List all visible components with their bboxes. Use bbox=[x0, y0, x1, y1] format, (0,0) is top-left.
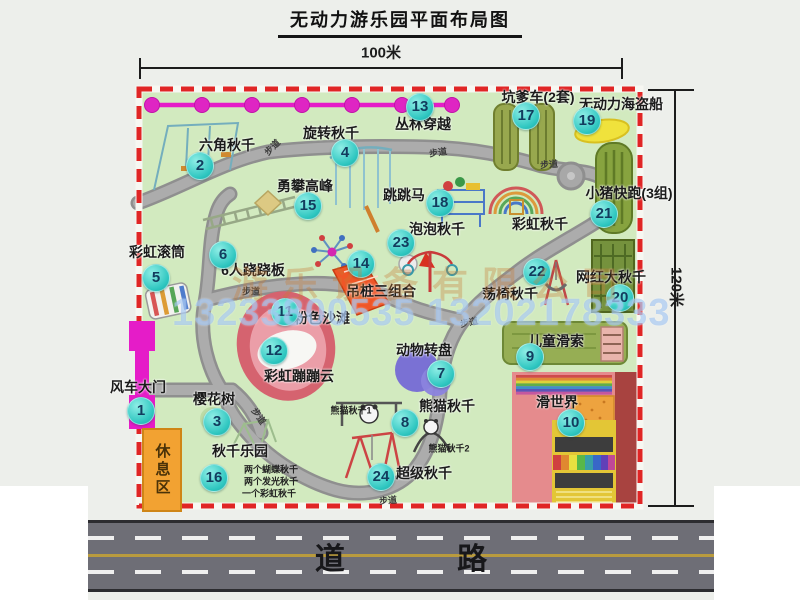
map-badge-2: 2 bbox=[186, 152, 214, 180]
map-badge-18: 18 bbox=[426, 189, 454, 217]
map-label-5: 彩虹滚筒 bbox=[129, 242, 185, 262]
map-label-17: 坑爹车(2套) bbox=[501, 87, 574, 107]
walkway-label-0: 步道 bbox=[261, 136, 283, 158]
map-badge-23: 23 bbox=[387, 229, 415, 257]
map-badge-11: 11 bbox=[271, 298, 299, 326]
map-label-3: 樱花树 bbox=[193, 389, 235, 409]
map-label-18: 跳跳马 bbox=[383, 185, 425, 205]
map-label-24: 超级秋千 bbox=[396, 463, 452, 483]
road-label: 道 路 bbox=[88, 534, 714, 578]
map-badge-19: 19 bbox=[573, 107, 601, 135]
map-badge-4: 4 bbox=[331, 139, 359, 167]
map-badge-6: 6 bbox=[209, 241, 237, 269]
map-badge-9: 9 bbox=[516, 343, 544, 371]
road: 道 路 bbox=[88, 520, 714, 592]
map-badge-10: 10 bbox=[557, 409, 585, 437]
walkway-label-2: 步道 bbox=[539, 157, 558, 172]
map-badge-24: 24 bbox=[367, 463, 395, 491]
map-badge-15: 15 bbox=[294, 192, 322, 220]
walkway-label-3: 步道 bbox=[242, 285, 260, 298]
walkway-label-6: 步道 bbox=[378, 493, 397, 508]
map-badge-17: 17 bbox=[512, 102, 540, 130]
map-badge-7: 7 bbox=[427, 360, 455, 388]
walkway-label-1: 步道 bbox=[428, 144, 448, 159]
map-badge-1: 1 bbox=[127, 397, 155, 425]
map-small-label-1: 熊猫秋千2 bbox=[428, 442, 469, 455]
map-badge-20: 20 bbox=[606, 284, 634, 312]
map-badge-3: 3 bbox=[203, 408, 231, 436]
map-badge-22: 22 bbox=[523, 258, 551, 286]
map-badge-12: 12 bbox=[260, 337, 288, 365]
map-label-14: 吊桩三组合 bbox=[346, 281, 416, 301]
map-badge-5: 5 bbox=[142, 264, 170, 292]
map-label-16: 秋千乐园 bbox=[212, 441, 268, 461]
map-label-2: 六角秋千 bbox=[199, 135, 255, 155]
map-small-label-0: 熊猫秋千1 bbox=[330, 404, 371, 417]
map-badge-13: 13 bbox=[406, 93, 434, 121]
rest-area-box: 休息区 bbox=[142, 428, 182, 512]
map-badge-14: 14 bbox=[347, 250, 375, 278]
map-label-11: 粉色沙滩 bbox=[294, 308, 350, 328]
map-small-label-4: 一个彩虹秋千 bbox=[242, 487, 296, 500]
map-label-8: 熊猫秋千 bbox=[419, 396, 475, 416]
map-annotation-layer: 风车大门1六角秋千2樱花树3旋转秋千4彩虹滚筒56人跷跷板6动物转盘7熊猫秋千8… bbox=[0, 0, 800, 600]
map-label-23: 泡泡秋千 bbox=[409, 219, 465, 239]
rest-area-label: 休息区 bbox=[152, 443, 173, 497]
map-label-12: 彩虹蹦蹦云 bbox=[264, 366, 334, 386]
walkway-label-4: 步道 bbox=[459, 314, 479, 330]
map-badge-8: 8 bbox=[391, 409, 419, 437]
map-badge-21: 21 bbox=[590, 200, 618, 228]
walkway-label-5: 步道 bbox=[249, 405, 270, 427]
map-label-20: 网红大秋千 bbox=[576, 267, 646, 287]
map-label-22: 荡椅秋千 bbox=[482, 284, 538, 304]
map-label-7: 动物转盘 bbox=[396, 340, 452, 360]
map-label-1: 风车大门 bbox=[110, 377, 166, 397]
map-label-彩虹秋千: 彩虹秋千 bbox=[512, 214, 568, 234]
map-badge-16: 16 bbox=[200, 464, 228, 492]
park-plan-image: 无动力游乐园平面布局图 100米 120米 风车大门1六角秋千2樱花树3旋转秋千… bbox=[0, 0, 800, 600]
